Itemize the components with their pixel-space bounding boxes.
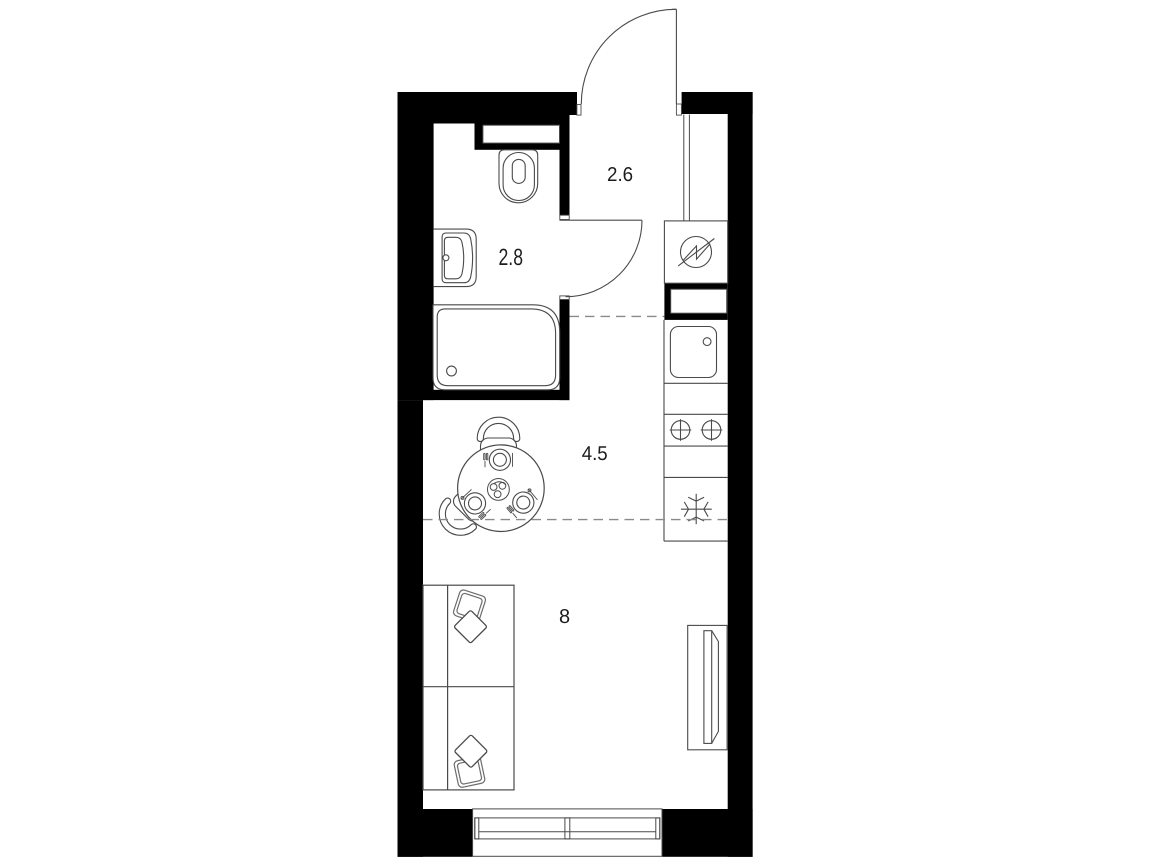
svg-text:2.6: 2.6 [607,164,633,186]
svg-text:4.5: 4.5 [582,443,608,465]
svg-text:2.8: 2.8 [499,244,524,270]
svg-text:8: 8 [559,606,570,628]
